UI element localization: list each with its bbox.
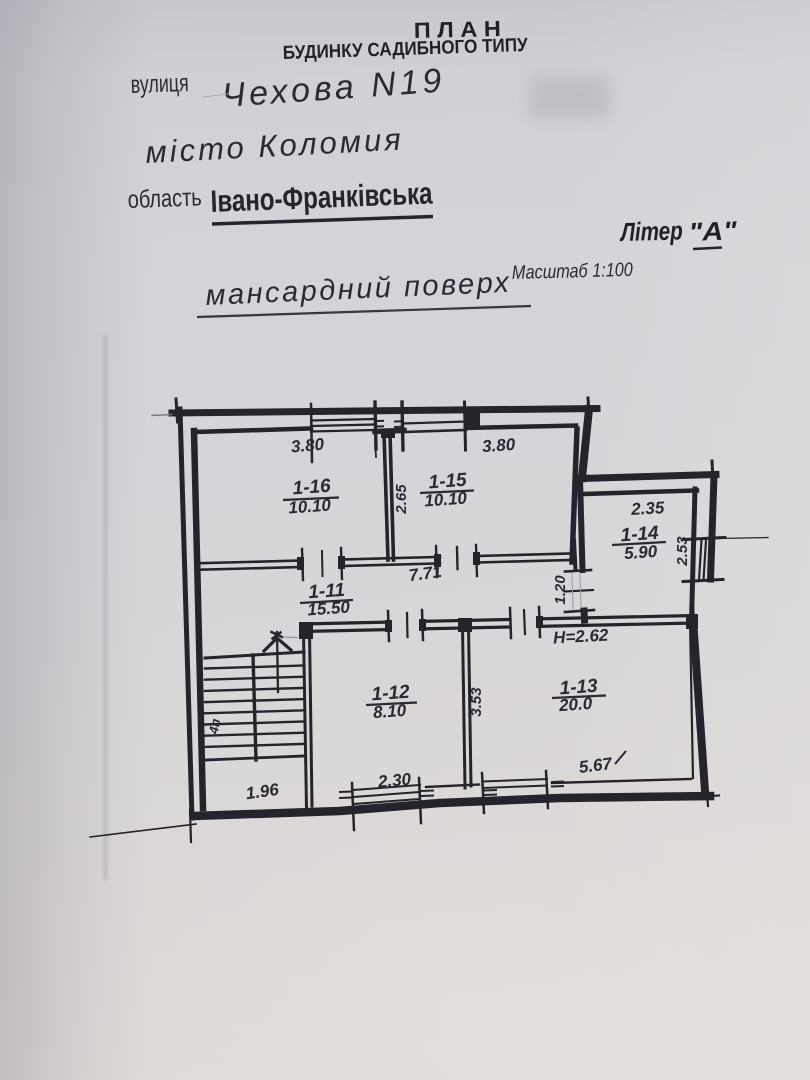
svg-text:2.65: 2.65	[393, 484, 410, 515]
svg-text:Н=2.62: Н=2.62	[553, 626, 610, 648]
svg-text:5.67: 5.67	[578, 754, 615, 777]
svg-text:3.80: 3.80	[290, 435, 325, 457]
svg-text:2.35: 2.35	[630, 498, 666, 519]
svg-text:2.30: 2.30	[376, 770, 412, 792]
svg-text:3.53: 3.53	[468, 687, 485, 717]
svg-text:Літер: Літер	[619, 215, 683, 247]
svg-text:Чехова N19: Чехова N19	[221, 61, 447, 115]
svg-text:1.20: 1.20	[552, 575, 569, 605]
svg-text:мансардний поверх: мансардний поверх	[205, 267, 512, 312]
svg-text:4п: 4п	[206, 717, 224, 736]
svg-text:місто Коломия: місто Коломия	[145, 122, 405, 170]
svg-text:15.50: 15.50	[307, 598, 351, 620]
svg-text:вулиця: вулиця	[130, 69, 189, 99]
svg-text:8.10: 8.10	[372, 701, 407, 722]
svg-text:20.0: 20.0	[557, 694, 593, 715]
svg-text:7.71: 7.71	[408, 562, 443, 585]
svg-text:10.10: 10.10	[424, 489, 468, 511]
svg-text:2.53: 2.53	[674, 536, 691, 567]
svg-text:"А": "А"	[688, 215, 738, 247]
svg-text:5.90: 5.90	[623, 542, 658, 563]
svg-text:область: область	[127, 183, 202, 214]
svg-text:БУДИНКУ САДИБНОГО ТИПУ: БУДИНКУ САДИБНОГО ТИПУ	[282, 35, 528, 64]
svg-text:10.10: 10.10	[288, 496, 332, 518]
svg-text:Івано-Франківська: Івано-Франківська	[210, 175, 434, 219]
svg-text:3.80: 3.80	[481, 435, 516, 456]
svg-text:1.96: 1.96	[245, 780, 281, 803]
svg-text:Масштаб 1:100: Масштаб 1:100	[512, 259, 634, 284]
